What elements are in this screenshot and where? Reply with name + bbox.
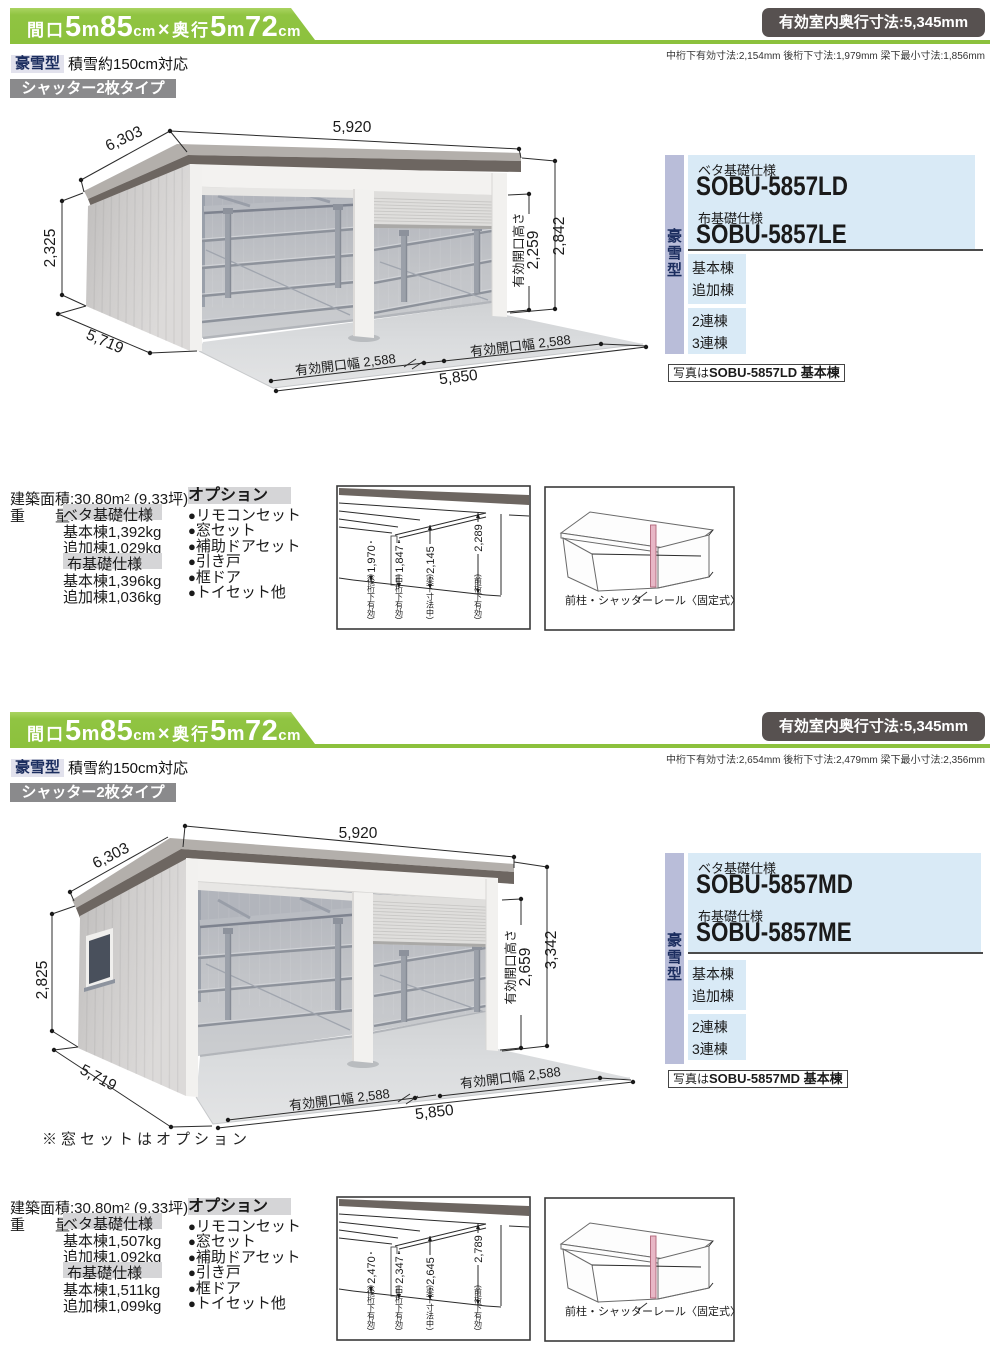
svg-text:前柱・シャッターレール〈固定式〉: 前柱・シャッターレール〈固定式〉 [565,1304,741,1318]
